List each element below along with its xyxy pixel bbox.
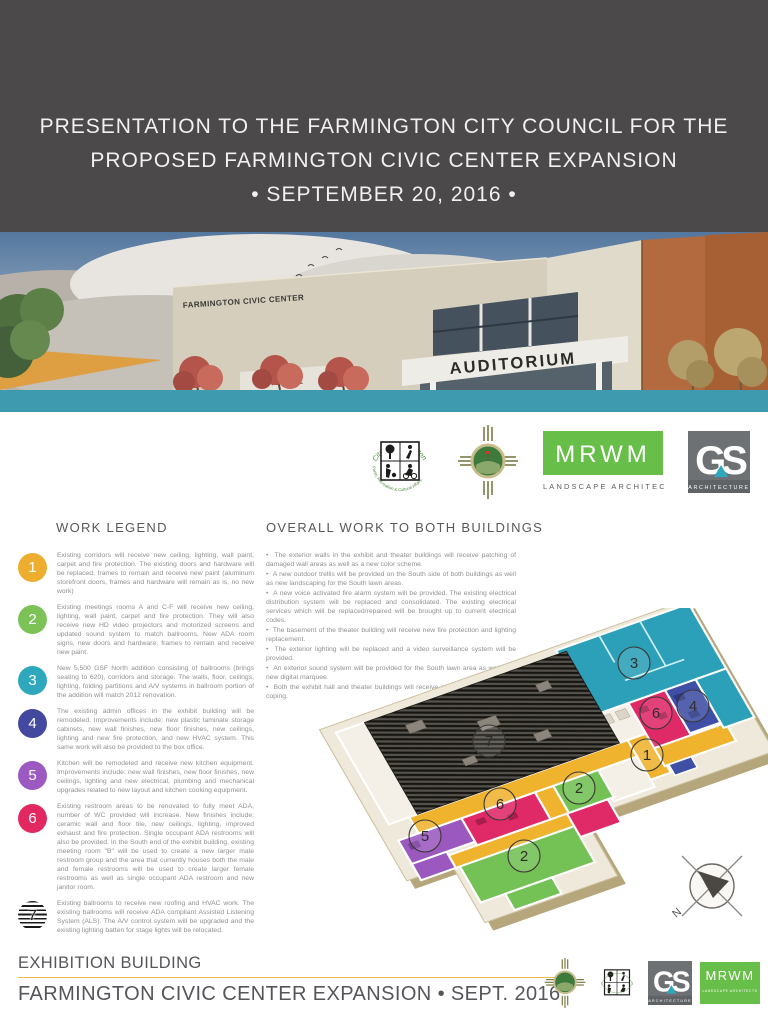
legend-item: 5 Kitchen will be remodeled and receive … bbox=[18, 759, 254, 795]
legend-item: 2 Existing meetings rooms A and C-F will… bbox=[18, 603, 254, 657]
footer-gold-rule bbox=[18, 977, 555, 978]
legend-item: 3 New 5,500 GSF North addition consistin… bbox=[18, 664, 254, 700]
footer-building-title: EXHIBITION BUILDING bbox=[18, 954, 561, 973]
gs-logo-caption: ARCHITECTURE bbox=[688, 485, 749, 491]
legend-item: 1 Existing corridors will receive new ce… bbox=[18, 551, 254, 596]
legend-item: 7 Existing ballrooms to receive new roof… bbox=[18, 899, 254, 935]
work-legend-section: WORK LEGEND 1 Existing corridors will re… bbox=[18, 512, 254, 950]
page-title: PRESENTATION TO THE FARMINGTON CITY COUN… bbox=[0, 0, 768, 212]
plan-marker-6: 6 bbox=[484, 788, 516, 820]
svg-text:6: 6 bbox=[652, 705, 660, 722]
gs-logo: GS ARCHITECTURE bbox=[688, 431, 750, 493]
plan-marker-7: 7 bbox=[473, 725, 505, 757]
legend-number-badge: 2 bbox=[18, 605, 47, 634]
legend-item-text: Existing ballrooms to receive new roofin… bbox=[57, 899, 254, 935]
footer-gs-logo: GS ARCHITECTURE bbox=[648, 961, 692, 1005]
plan-marker-4: 4 bbox=[677, 690, 709, 722]
footer-logos: GS ARCHITECTURE MRWM LANDSCAPE ARCHITECT… bbox=[544, 958, 760, 1008]
legend-item-text: New 5,500 GSF North addition consisting … bbox=[57, 664, 254, 700]
legend-item: 6 Existing restroom areas to be renovate… bbox=[18, 802, 254, 892]
legend-number-badge: 4 bbox=[18, 709, 47, 738]
svg-text:LANDSCAPE ARCHITECTS: LANDSCAPE ARCHITECTS bbox=[703, 989, 758, 993]
title-band: PRESENTATION TO THE FARMINGTON CITY COUN… bbox=[0, 0, 768, 232]
svg-text:3: 3 bbox=[630, 655, 638, 672]
footer: EXHIBITION BUILDING FARMINGTON CIVIC CEN… bbox=[0, 950, 768, 1024]
overall-work-bullet: The exterior walls in the exhibit and th… bbox=[266, 551, 516, 569]
plan-marker-1: 1 bbox=[631, 739, 663, 771]
north-label: N bbox=[670, 906, 684, 920]
svg-text:ARCHITECTURE: ARCHITECTURE bbox=[648, 999, 692, 1003]
svg-text:MRWM: MRWM bbox=[705, 968, 754, 983]
overall-work-bullet: A new outdoor trellis will be provided o… bbox=[266, 570, 516, 588]
legend-item-text: Existing meetings rooms A and C-F will r… bbox=[57, 603, 254, 657]
legend-item-text: Existing corridors will receive new ceil… bbox=[57, 551, 254, 596]
overall-work-section: OVERALL WORK TO BOTH BUILDINGS The exter… bbox=[254, 512, 760, 950]
footer-parks-logo bbox=[594, 960, 640, 1006]
title-line-3: • SEPTEMBER 20, 2016 • bbox=[0, 178, 768, 212]
legend-item-text: Kitchen will be remodeled and receive ne… bbox=[57, 759, 254, 795]
mrwm-logo-caption: LANDSCAPE ARCHITECTS bbox=[543, 482, 664, 491]
legend-number-badge: 6 bbox=[18, 804, 47, 833]
teal-divider-band bbox=[0, 390, 768, 412]
mrwm-logo-text: MRWM bbox=[555, 441, 651, 468]
legend-item: 4 The existing admin offices in the exhi… bbox=[18, 707, 254, 752]
title-line-2: PROPOSED FARMINGTON CIVIC CENTER EXPANSI… bbox=[0, 144, 768, 178]
title-line-1: PRESENTATION TO THE FARMINGTON CITY COUN… bbox=[0, 110, 768, 144]
footer-mrwm-logo: MRWM LANDSCAPE ARCHITECTS bbox=[700, 962, 760, 1004]
legend-number-badge: 1 bbox=[18, 553, 47, 582]
logo-row: City of Farmington Parks, Recreation & C… bbox=[0, 412, 768, 512]
farmington-seal-logo bbox=[458, 425, 518, 499]
plan-marker-6: 6 bbox=[640, 697, 672, 729]
svg-text:2: 2 bbox=[575, 780, 583, 797]
footer-project-title: FARMINGTON CIVIC CENTER EXPANSION • SEPT… bbox=[18, 983, 561, 1006]
north-arrow: N bbox=[670, 856, 742, 920]
svg-text:5: 5 bbox=[421, 828, 429, 845]
work-legend-title: WORK LEGEND bbox=[56, 520, 254, 535]
overall-work-title: OVERALL WORK TO BOTH BUILDINGS bbox=[266, 520, 760, 535]
plan-marker-2: 2 bbox=[563, 772, 595, 804]
floor-plan: 376416252 N bbox=[304, 608, 768, 950]
building-rendering: FARMINGTON CIVIC CENTER AUDITORIUM CIVIC… bbox=[0, 232, 768, 390]
mrwm-logo: MRWM LANDSCAPE ARCHITECTS bbox=[542, 430, 664, 494]
svg-text:2: 2 bbox=[520, 848, 528, 865]
parks-logo: City of Farmington Parks, Recreation & C… bbox=[366, 427, 434, 497]
legend-number-badge: 7 bbox=[18, 901, 47, 930]
svg-text:6: 6 bbox=[496, 796, 504, 813]
plan-marker-3: 3 bbox=[618, 647, 650, 679]
legend-item-text: The existing admin offices in the exhibi… bbox=[57, 707, 254, 752]
svg-text:GS: GS bbox=[653, 967, 690, 999]
footer-titles: EXHIBITION BUILDING FARMINGTON CIVIC CEN… bbox=[18, 954, 561, 1006]
legend-item-text: Existing restroom areas to be renovated … bbox=[57, 802, 254, 892]
footer-seal-logo bbox=[544, 958, 586, 1008]
content-area: WORK LEGEND 1 Existing corridors will re… bbox=[0, 512, 768, 950]
legend-number-badge: 3 bbox=[18, 666, 47, 695]
legend-number-badge: 5 bbox=[18, 761, 47, 790]
svg-text:7: 7 bbox=[485, 733, 493, 750]
svg-text:1: 1 bbox=[643, 747, 651, 764]
work-legend-list: 1 Existing corridors will receive new ce… bbox=[18, 551, 254, 935]
plan-marker-2: 2 bbox=[508, 840, 540, 872]
svg-text:4: 4 bbox=[689, 698, 697, 715]
plan-marker-5: 5 bbox=[409, 820, 441, 852]
